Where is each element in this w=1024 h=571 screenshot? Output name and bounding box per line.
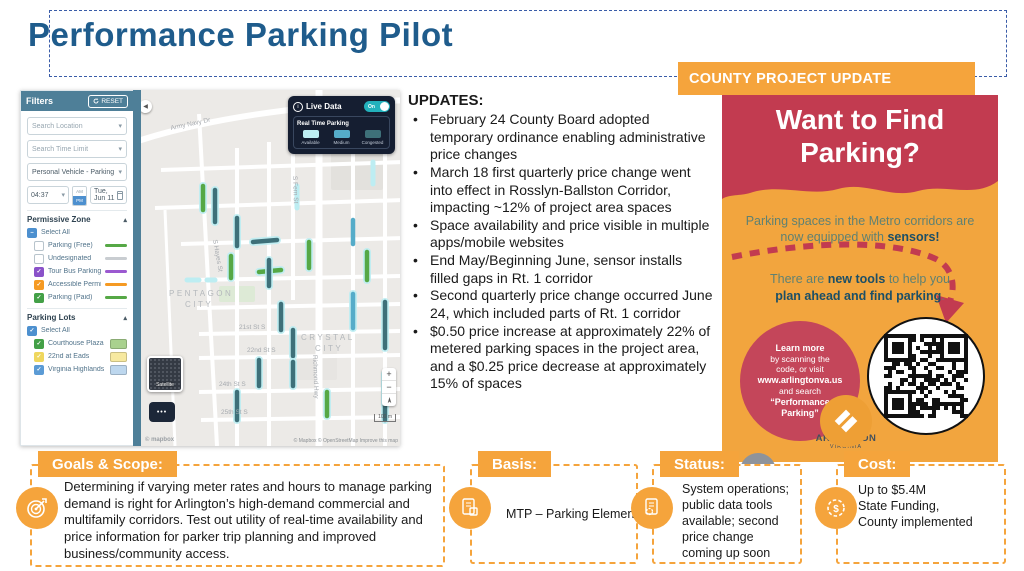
zoom-in-button[interactable]: +	[382, 368, 396, 380]
learn-line: Learn more	[740, 343, 860, 354]
map-zoom-controls: + −	[382, 368, 396, 406]
filter-label: Virginia Highlands Park	[48, 366, 106, 373]
updates-section: UPDATES: February 24 County Board adopte…	[408, 92, 714, 393]
reset-button[interactable]: RESET	[88, 95, 128, 108]
am-pm-toggle[interactable]: AM PM	[72, 186, 87, 206]
filters-header: Filters RESET	[21, 91, 133, 111]
compass-icon	[386, 397, 393, 404]
am-option[interactable]: AM	[73, 187, 86, 196]
legend-box	[110, 339, 127, 349]
lot-virginia-highlands[interactable]: ✓ Virginia Highlands Park	[27, 363, 127, 376]
legend-line	[105, 283, 127, 286]
satellite-label: Satellite	[156, 382, 174, 388]
page-title: Performance Parking Pilot	[28, 16, 453, 54]
legend-label: Congested	[362, 140, 384, 145]
area-label-crystal-city: CRYSTAL	[301, 333, 355, 342]
poster-tools-text: There are new tools to help you plan ahe…	[736, 271, 984, 305]
status-text: System operations; public data tools ava…	[682, 481, 796, 561]
section-title: Permissive Zone	[27, 215, 91, 224]
chevron-down-icon	[118, 168, 122, 176]
parking-map-app: Filters RESET Search Location Search Tim…	[20, 90, 400, 446]
filter-item-undesignated[interactable]: Undesignated	[27, 252, 127, 265]
tools-text: There are	[770, 272, 828, 286]
learn-line: code, or visit	[740, 364, 860, 375]
toggle-knob	[380, 102, 389, 111]
filter-item-tour-bus[interactable]: ✓ Tour Bus Parking	[27, 265, 127, 278]
checkbox[interactable]: ✓	[34, 365, 44, 375]
filter-label: Accessible Permit	[48, 281, 101, 288]
legend-box	[110, 352, 127, 362]
permissive-zone-section[interactable]: Permissive Zone	[27, 215, 127, 224]
time-input[interactable]: 04:37	[27, 186, 69, 204]
tools-text: to help you	[885, 272, 950, 286]
banner-label: COUNTY PROJECT UPDATE	[689, 71, 891, 87]
subtitle-bold: sensors!	[887, 230, 939, 244]
divider	[27, 308, 127, 309]
legend-line	[105, 270, 127, 273]
update-bullet: February 24 County Board adopted tempora…	[408, 111, 714, 164]
checkbox[interactable]: ✓	[34, 267, 44, 277]
street-label: S Fern St	[291, 176, 299, 204]
zoom-out-button[interactable]: −	[382, 380, 396, 393]
area-label-crystal-city: CITY	[315, 344, 343, 353]
legend-title: Real Time Parking	[297, 121, 386, 127]
lot-courthouse-plaza[interactable]: ✓ Courthouse Plaza Lot	[27, 337, 127, 350]
want-to-find-parking-poster: Want to Find Parking? Parking spaces in …	[722, 95, 998, 462]
update-bullet: March 18 first quarterly price change we…	[408, 164, 714, 217]
search-location-select[interactable]: Search Location	[27, 117, 127, 135]
checkbox[interactable]: ✓	[34, 339, 44, 349]
checkbox[interactable]: ✓	[34, 293, 44, 303]
calendar-icon	[117, 191, 123, 200]
slide: Performance Parking Pilot Filters RESET …	[0, 0, 1024, 571]
legend-box	[110, 365, 127, 375]
filter-label: Parking (Paid)	[48, 294, 92, 301]
chevron-down-icon	[118, 122, 122, 130]
area-label-pentagon-city: CITY	[185, 300, 213, 309]
checkbox[interactable]	[34, 254, 44, 264]
pm-option[interactable]: PM	[73, 196, 86, 205]
satellite-layer-button[interactable]: Satellite	[147, 356, 183, 392]
update-bullet: Second quarterly price change occurred J…	[408, 287, 714, 322]
map-attribution[interactable]: © Mapbox © OpenStreetMap Improve this ma…	[294, 438, 398, 444]
divider	[27, 210, 127, 211]
county-project-update-banner: COUNTY PROJECT UPDATE	[678, 62, 975, 95]
poster-title: Want to Find Parking?	[755, 103, 965, 169]
chevron-down-icon	[61, 191, 65, 199]
goals-scope-header: Goals & Scope:	[38, 451, 177, 477]
search-time-limit-value: Search Time Limit	[32, 146, 88, 153]
chevron-down-icon	[118, 145, 122, 153]
tools-text: .	[941, 289, 944, 303]
checkbox[interactable]: ✓	[34, 280, 44, 290]
legend-line	[105, 244, 127, 247]
checkbox[interactable]: –	[27, 228, 37, 238]
target-icon	[16, 487, 58, 529]
sidebar-edge-strip	[133, 90, 141, 446]
search-location-value: Search Location	[32, 123, 83, 130]
date-picker[interactable]: Tue, Jun 11	[90, 186, 127, 204]
real-time-parking-legend: Real Time Parking Available Medium Co	[293, 116, 390, 149]
learn-line: by scanning the	[740, 354, 860, 365]
legend-label: Medium	[333, 140, 349, 145]
legend-label: Available	[301, 140, 319, 145]
filter-label: Tour Bus Parking	[48, 268, 101, 275]
legend-item-available: Available	[297, 130, 324, 145]
filter-item-parking-free[interactable]: Parking (Free)	[27, 239, 127, 252]
info-icon: i	[293, 102, 303, 112]
filters-sidebar: Filters RESET Search Location Search Tim…	[20, 90, 133, 446]
street-label: 22nd St S	[247, 347, 276, 354]
live-data-label: Live Data	[306, 102, 342, 111]
chevron-up-icon	[123, 215, 127, 224]
filter-label: 22nd at Eads	[48, 353, 89, 360]
legend-swatch	[303, 130, 319, 138]
legend-item-medium: Medium	[328, 130, 355, 145]
svg-text:$: $	[833, 504, 839, 515]
date-value: Tue, Jun 11	[94, 188, 117, 202]
status-header: Status:	[660, 451, 739, 477]
refresh-icon	[93, 98, 99, 104]
live-data-toggle[interactable]: On	[364, 101, 390, 112]
live-data-panel: i Live Data On Real Time Parking Availab…	[288, 96, 395, 154]
updates-list: February 24 County Board adopted tempora…	[408, 111, 714, 393]
map-scale: 100 m	[374, 414, 396, 422]
tools-bold: new tools	[828, 272, 886, 286]
arlington-logo-icon	[820, 395, 872, 447]
filter-label: Parking (Free)	[48, 242, 93, 249]
filter-label: Undesignated	[48, 255, 91, 262]
cost-header: Cost:	[844, 451, 910, 477]
checkbox[interactable]: ✓	[27, 326, 37, 336]
lot-22nd-at-eads[interactable]: ✓ 22nd at Eads	[27, 350, 127, 363]
document-gear-icon	[631, 487, 673, 529]
chevron-up-icon	[123, 313, 127, 322]
toggle-state: On	[368, 104, 375, 110]
tools-bold: plan ahead and find parking	[775, 289, 941, 303]
filters-title: Filters	[26, 96, 53, 106]
street-label: 24th St S	[219, 381, 246, 388]
update-bullet: End May/Beginning June, sensor installs …	[408, 252, 714, 287]
arlington-logo: ARLINGTON VIRGINIA	[794, 395, 898, 450]
mapbox-logo[interactable]: © mapbox	[145, 437, 174, 443]
more-options-button[interactable]: •••	[149, 402, 175, 422]
subtitle-text: Parking spaces in the Metro corridors ar…	[746, 214, 975, 244]
street-label: 21st St S	[239, 324, 266, 331]
filter-label: Select All	[41, 229, 70, 236]
filter-label: Select All	[41, 327, 70, 334]
basis-text: MTP – Parking Element	[506, 506, 636, 522]
gear-dollar-icon: $	[815, 487, 857, 529]
vehicle-type-select[interactable]: Personal Vehicle - Parking	[27, 163, 127, 181]
cost-text: Up to $5.4M State Funding, County implem…	[858, 482, 1000, 530]
filter-item-accessible-permit[interactable]: ✓ Accessible Permit	[27, 278, 127, 291]
legend-line	[105, 296, 127, 299]
update-bullet: Space availability and price visible in …	[408, 217, 714, 252]
filter-item-parking-paid[interactable]: ✓ Parking (Paid)	[27, 291, 127, 304]
compass-button[interactable]	[382, 393, 396, 406]
poster-subtitle: Parking spaces in the Metro corridors ar…	[736, 213, 984, 246]
area-label-pentagon-city: PENTAGON	[169, 289, 233, 298]
parking-lots-section[interactable]: Parking Lots	[27, 313, 127, 322]
street-label: 25th St S	[221, 409, 248, 416]
filter-item-select-all[interactable]: – Select All	[27, 226, 127, 239]
document-puzzle-icon	[449, 487, 491, 529]
checkbox[interactable]: ✓	[34, 352, 44, 362]
reset-label: RESET	[101, 98, 123, 105]
map-area: Army Navy Dr S Fern St S Hayes St Richmo…	[141, 90, 400, 446]
legend-item-congested: Congested	[359, 130, 386, 145]
checkbox[interactable]	[34, 241, 44, 251]
lots-select-all[interactable]: ✓ Select All	[27, 324, 127, 337]
section-title: Parking Lots	[27, 313, 75, 322]
legend-swatch	[334, 130, 350, 138]
legend-line	[105, 257, 127, 260]
vehicle-type-value: Personal Vehicle - Parking	[32, 169, 114, 176]
updates-heading: UPDATES:	[408, 92, 714, 109]
filter-label: Courthouse Plaza Lot	[48, 340, 106, 347]
update-bullet: $0.50 price increase at approximately 22…	[408, 323, 714, 394]
legend-swatch	[365, 130, 381, 138]
goals-scope-text: Determining if varying meter rates and h…	[64, 479, 438, 562]
learn-url[interactable]: www.arlingtonva.us	[740, 375, 860, 386]
time-value: 04:37	[31, 192, 49, 199]
basis-header: Basis:	[478, 451, 551, 477]
search-time-limit-select[interactable]: Search Time Limit	[27, 140, 127, 158]
